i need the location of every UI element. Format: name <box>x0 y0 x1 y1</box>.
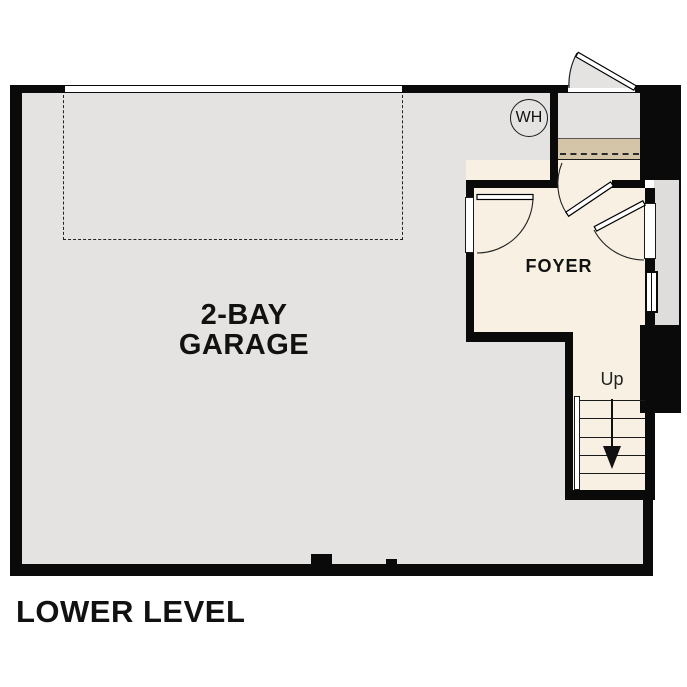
foyer-label: FOYER <box>509 256 609 277</box>
wall-mass-mid-right <box>640 325 681 413</box>
wall-post-2 <box>386 559 397 564</box>
stairs-up-label: Up <box>592 369 632 390</box>
wall-stair-bottom <box>565 490 655 500</box>
wall-foyer-left-upper <box>466 188 474 197</box>
garage-dashed-outline <box>63 95 403 240</box>
wall-top-left <box>10 85 65 93</box>
window-mullion <box>651 273 652 311</box>
stair-hall-floor <box>573 332 645 490</box>
wall-bottom <box>10 564 653 576</box>
foyer-side-door-opening <box>644 203 656 259</box>
wall-left <box>10 85 22 576</box>
window <box>645 271 658 313</box>
garage-overhead-door <box>65 85 402 93</box>
garage-floor-lower-right <box>573 500 643 566</box>
wall-foyer-right-c <box>645 313 655 325</box>
garage-label-line2: GARAGE <box>144 330 344 360</box>
entry-door-swing-arc <box>569 53 577 88</box>
stair-tread <box>580 418 645 419</box>
wall-post-1 <box>311 554 332 564</box>
garage-label-line1: 2-BAY <box>144 300 344 330</box>
wall-foyer-left-lower <box>466 253 474 332</box>
wall-mass-top-right <box>640 85 681 180</box>
wall-foyer-right-a <box>645 188 655 203</box>
entry-stoop <box>654 180 681 325</box>
water-heater-circle: WH <box>510 99 548 137</box>
page-title: LOWER LEVEL <box>16 594 245 630</box>
wall-stair-right <box>645 413 655 490</box>
stair-tread <box>580 473 645 474</box>
stair-tread <box>580 400 645 401</box>
floor-plan: WH 2-BAY GARAGE FOYER Up LOWER LEVEL <box>0 0 687 687</box>
wall-foyer-right-b <box>645 259 655 271</box>
entry-vestibule-floor <box>558 93 643 138</box>
wall-vestibule-left <box>550 85 558 188</box>
stair-tread <box>580 455 645 456</box>
entry-door-opening <box>568 85 635 93</box>
entry-door-swing-area <box>569 53 635 88</box>
water-heater-label: WH <box>516 109 543 127</box>
stair-tread <box>580 437 645 438</box>
wall-foyer-top <box>466 180 558 188</box>
wall-foyer-bottom <box>466 332 573 342</box>
wall-foyer-top-right-stub <box>612 180 645 188</box>
wall-lower-right <box>643 500 653 576</box>
entry-threshold <box>558 138 643 160</box>
garage-label: 2-BAY GARAGE <box>144 300 344 360</box>
wall-top-middle <box>402 85 568 93</box>
stair-handrail <box>574 396 580 490</box>
garage-foyer-door-opening <box>465 197 474 253</box>
threshold-dashed-line <box>560 153 639 155</box>
wall-stair-left <box>565 342 573 500</box>
